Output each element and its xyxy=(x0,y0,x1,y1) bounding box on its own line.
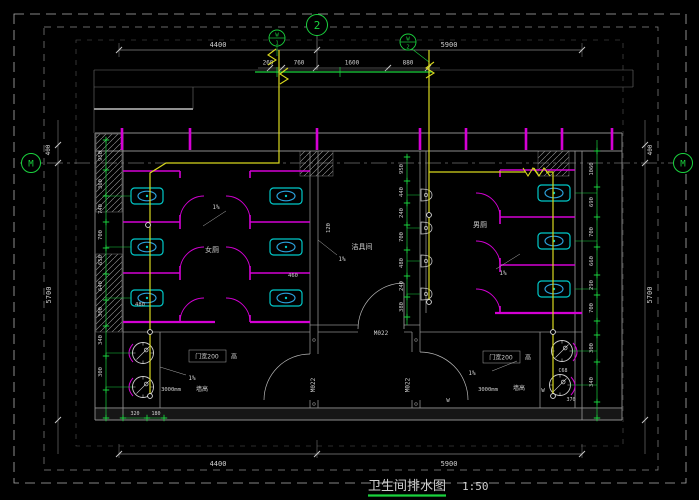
dim-right-400: 400 xyxy=(647,144,654,155)
dim-chain: 740 xyxy=(98,204,104,214)
drawing-title: 卫生间排水图 xyxy=(368,479,446,494)
bottom-wall-fill xyxy=(95,409,622,420)
room-label-fixture-room: 洁具间 xyxy=(352,242,373,251)
dim-chain: 340 xyxy=(98,335,104,345)
dimension-bottom: 4400 5900 xyxy=(116,440,585,468)
dim-sub-880: 880 xyxy=(403,60,414,67)
dim-480: 480 xyxy=(135,302,145,308)
yellow-waste-pipes xyxy=(150,50,553,396)
slope-label: 1% xyxy=(188,375,196,382)
dimension-sub: 260 760 1600 880 xyxy=(258,60,440,72)
cad-drawing-sheet: M M 2 4400 5900 260 760 1600 880 4400 59… xyxy=(0,0,699,500)
dim-chain: 300 xyxy=(98,367,104,377)
dim-bottom-4400: 4400 xyxy=(210,460,227,468)
drawing-scale: 1:50 xyxy=(462,480,489,493)
dim-chain: 700 xyxy=(589,303,595,313)
canopy-outline xyxy=(94,70,633,133)
door-tag-right: M022 xyxy=(405,377,412,392)
dim-180: 180 xyxy=(151,411,160,417)
dim-chain: 640 xyxy=(98,281,104,291)
fixture-code-label: C68 xyxy=(558,368,567,374)
urinal xyxy=(421,255,432,267)
urinals xyxy=(421,189,432,300)
dim-chain: 660 xyxy=(589,256,595,266)
pipe-break-symbol xyxy=(280,68,288,84)
dim-top-5900: 5900 xyxy=(441,41,458,49)
slope-label: 1% xyxy=(499,270,507,277)
grid-label-2: 2 xyxy=(314,19,321,32)
slope-label: 1% xyxy=(212,204,220,211)
door-width-note: 门宽200 xyxy=(489,354,513,362)
door-width-note: 门宽200 xyxy=(195,353,219,361)
wall-height-label: 墙高 xyxy=(196,385,208,393)
chain-right: 1060 690 700 660 290 700 300 340 xyxy=(570,140,600,421)
dim-chain: 440 xyxy=(399,187,405,197)
pipe-w-label: W xyxy=(446,398,450,404)
dim-460: 460 xyxy=(288,273,298,279)
door-swing-right-sink-room xyxy=(420,352,468,400)
dim-chain: 480 xyxy=(399,258,405,268)
urinal xyxy=(421,189,432,201)
dim-chain: 950 xyxy=(399,164,405,174)
dim-chain: 360 xyxy=(98,179,104,189)
door-swing-middle-room xyxy=(358,283,404,329)
dim-320: 320 xyxy=(130,411,139,417)
wall-height-value: 3000mm xyxy=(161,387,182,393)
dim-left-5700: 5700 xyxy=(45,287,53,304)
dim-chain: 950 xyxy=(98,151,104,161)
grid-label-M-left: M xyxy=(28,160,34,170)
basin xyxy=(551,340,573,362)
dim-chain: 240 xyxy=(399,281,405,291)
dim-right-5700: 5700 xyxy=(646,287,654,304)
dim-bottom-5900: 5900 xyxy=(441,460,458,468)
riser-1-number: 1 xyxy=(275,41,278,47)
drain-pipes xyxy=(146,49,556,398)
wall-height-label: 墙高 xyxy=(513,384,525,392)
toilet xyxy=(131,239,163,255)
dim-chain: 700 xyxy=(589,227,595,237)
bathroom-drainage-plan: M M 2 4400 5900 260 760 1600 880 4400 59… xyxy=(0,0,699,500)
urinal xyxy=(421,222,432,234)
basin xyxy=(132,342,154,364)
room-labels: 女厕 洁具间 男厕 120 480 460 xyxy=(135,221,487,308)
dim-left-400: 400 xyxy=(45,144,52,155)
grid-label-M-right: M xyxy=(680,160,686,170)
slope-label: 1% xyxy=(338,256,346,263)
dimension-right-edge: 400 5700 xyxy=(642,120,654,454)
dim-chain: 290 xyxy=(589,280,595,290)
dim-sub-1600: 1600 xyxy=(345,60,360,67)
dim-chain: 1060 xyxy=(589,162,595,175)
door-tags: M022 M022 M022 xyxy=(310,330,412,392)
dim-chain: 300 xyxy=(98,307,104,317)
toilet xyxy=(270,239,302,255)
riser-tags: W 1 W 2 xyxy=(269,30,429,62)
dim-chain: 690 xyxy=(589,197,595,207)
interior-walls xyxy=(123,151,582,408)
toilet xyxy=(538,185,570,201)
room-label-women: 女厕 xyxy=(205,245,219,254)
dim-chain: 240 xyxy=(399,208,405,218)
urinal xyxy=(421,288,432,300)
toilet xyxy=(270,188,302,204)
dim-120: 120 xyxy=(326,223,332,233)
basin xyxy=(549,374,571,396)
door-height-note: 高 xyxy=(231,353,237,361)
toilet xyxy=(131,188,163,204)
door-tag-center: M022 xyxy=(374,330,389,337)
dim-chain: 700 xyxy=(98,230,104,240)
dimension-top: 4400 5900 xyxy=(116,41,585,57)
fixture-dim-label: 370 xyxy=(566,397,575,403)
door-height-note: 高 xyxy=(525,354,531,362)
dim-chain: 300 xyxy=(589,343,595,353)
dim-chain: 700 xyxy=(399,232,405,242)
dim-sub-760: 760 xyxy=(294,60,305,67)
top-wall-window-ticks xyxy=(122,128,612,150)
door-swings xyxy=(264,283,468,400)
door-tag-left: M022 xyxy=(310,377,317,392)
pipe-w-label: W xyxy=(541,388,545,394)
dim-top-4400: 4400 xyxy=(210,41,227,49)
dim-chain: 380 xyxy=(399,302,405,312)
wall-hatch-left-top xyxy=(96,134,122,212)
riser-2-number: 2 xyxy=(406,45,409,51)
wall-hatch-middle xyxy=(300,151,333,176)
dimension-left-edge: 400 5700 xyxy=(45,120,61,454)
toilet xyxy=(270,290,302,306)
slope-leader-lines xyxy=(160,211,520,375)
dim-chain: 340 xyxy=(589,377,595,387)
squat-toilets xyxy=(131,185,570,306)
dim-chain: 650 xyxy=(98,255,104,265)
floor-drains xyxy=(146,213,556,399)
room-label-men: 男厕 xyxy=(473,221,487,229)
toilet xyxy=(538,233,570,249)
door-swing-left-sink-room xyxy=(264,354,310,400)
wall-height-value: 3000mm xyxy=(478,387,499,393)
toilet xyxy=(538,281,570,297)
title-block: 卫生间排水图 1:50 xyxy=(368,479,489,496)
slope-label: 1% xyxy=(468,370,476,377)
chain-middle: 950 440 240 700 480 240 380 xyxy=(399,154,420,325)
third-dashed-border xyxy=(76,40,623,446)
